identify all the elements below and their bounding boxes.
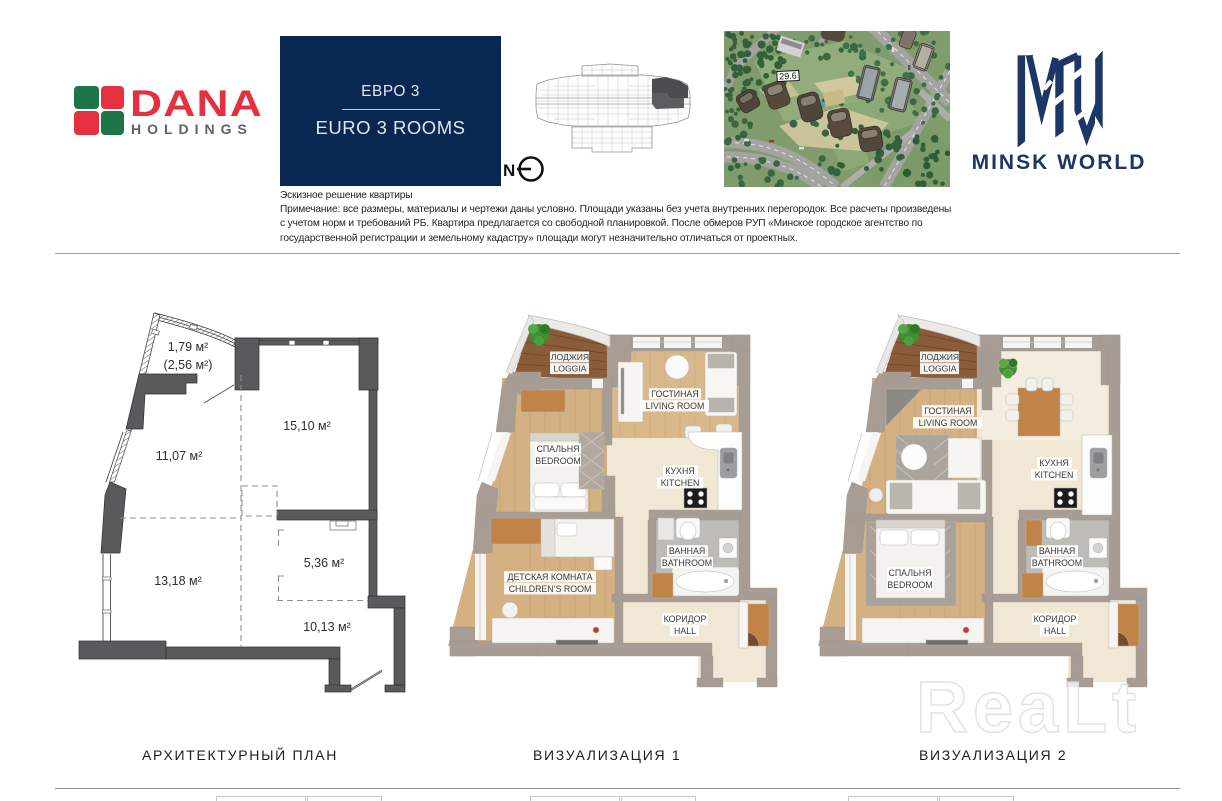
svg-text:LIVING ROOM: LIVING ROOM: [646, 401, 705, 411]
svg-text:ВАННАЯ: ВАННАЯ: [669, 546, 705, 556]
svg-text:29.6: 29.6: [779, 71, 797, 82]
svg-text:ГОСТИНАЯ: ГОСТИНАЯ: [924, 406, 971, 416]
svg-text:КОРИДОР: КОРИДОР: [664, 614, 707, 624]
svg-text:5,36 м²: 5,36 м²: [304, 556, 345, 570]
svg-text:KITCHEN: KITCHEN: [661, 478, 700, 488]
svg-text:11,07 м²: 11,07 м²: [156, 449, 203, 463]
svg-text:ЛОДЖИЯ: ЛОДЖИЯ: [921, 352, 959, 362]
svg-text:BATHROOM: BATHROOM: [662, 558, 712, 568]
svg-text:КУХНЯ: КУХНЯ: [665, 466, 694, 476]
svg-text:HALL: HALL: [1044, 626, 1066, 636]
svg-text:ReaLt: ReaLt: [916, 668, 1141, 748]
svg-text:BEDROOM: BEDROOM: [535, 456, 580, 466]
svg-text:ДЕТСКАЯ КОМНАТА: ДЕТСКАЯ КОМНАТА: [507, 572, 592, 582]
svg-text:ВАННАЯ: ВАННАЯ: [1039, 546, 1075, 556]
svg-text:СПАЛЬНЯ: СПАЛЬНЯ: [537, 444, 580, 454]
svg-text:13,18 м²: 13,18 м²: [154, 574, 202, 588]
svg-text:LOGGIA: LOGGIA: [924, 364, 957, 374]
svg-text:N: N: [503, 161, 515, 180]
svg-text:BATHROOM: BATHROOM: [1032, 558, 1082, 568]
svg-text:ЛОДЖИЯ: ЛОДЖИЯ: [551, 352, 589, 362]
svg-text:ГОСТИНАЯ: ГОСТИНАЯ: [651, 389, 698, 399]
svg-text:(2,56 м²): (2,56 м²): [164, 358, 213, 372]
svg-text:10,13 м²: 10,13 м²: [303, 620, 351, 634]
svg-text:MINSK WORLD: MINSK WORLD: [972, 151, 1147, 174]
svg-text:КУХНЯ: КУХНЯ: [1039, 458, 1068, 468]
svg-text:LOGGIA: LOGGIA: [554, 364, 587, 374]
svg-text:HALL: HALL: [674, 626, 696, 636]
svg-text:CHILDREN’S ROOM: CHILDREN’S ROOM: [509, 584, 592, 594]
svg-text:BEDROOM: BEDROOM: [887, 580, 932, 590]
svg-text:KITCHEN: KITCHEN: [1035, 470, 1074, 480]
svg-text:LIVING ROOM: LIVING ROOM: [919, 418, 978, 428]
svg-text:1,79 м²: 1,79 м²: [168, 340, 209, 354]
svg-text:15,10 м²: 15,10 м²: [283, 419, 331, 433]
svg-text:СПАЛЬНЯ: СПАЛЬНЯ: [889, 568, 932, 578]
svg-text:КОРИДОР: КОРИДОР: [1034, 614, 1077, 624]
